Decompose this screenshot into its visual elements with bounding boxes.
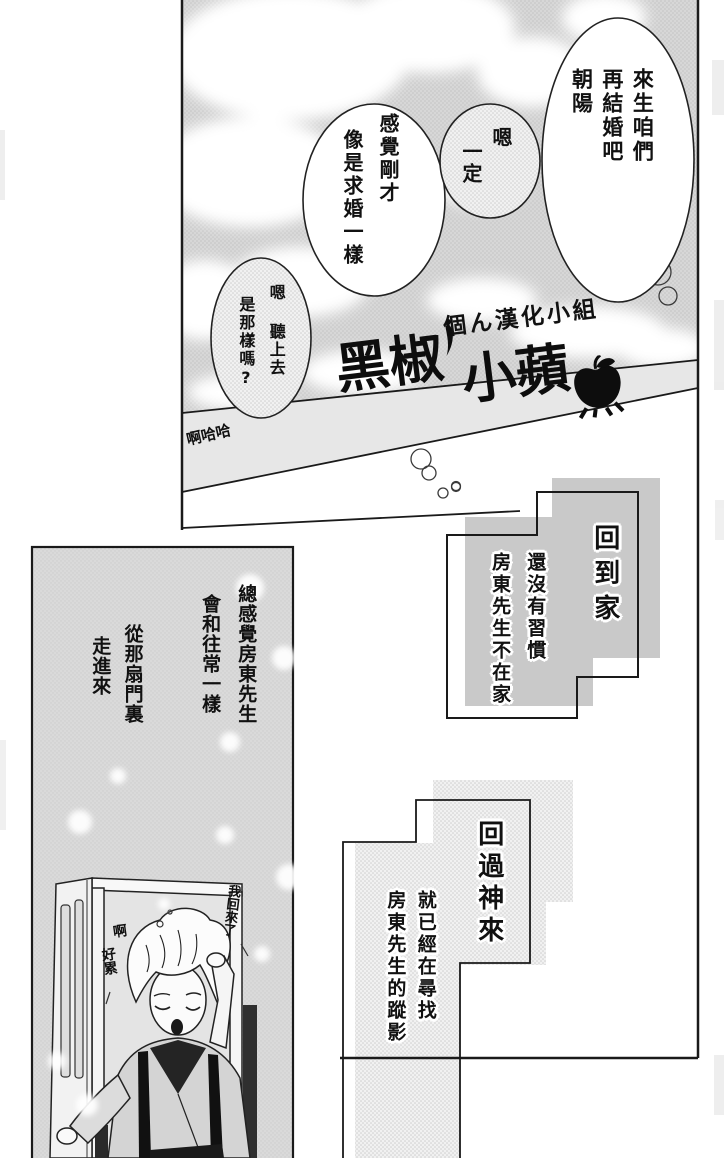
apple-icon (566, 353, 630, 425)
panel3-narration: 還沒有習慣 房東先生不在家 (482, 552, 552, 720)
logo-title: 黑椒 小蘋 (333, 309, 630, 453)
speech-bubble-4-text: 嗯 聽上去 是那樣嗎? (230, 284, 291, 404)
bubble-line: 來生咱們 (627, 68, 657, 263)
bokeh-spot (68, 810, 92, 834)
bokeh-spot (254, 946, 270, 962)
narration-line: 總感覺房東先生 (228, 584, 264, 744)
narration-line: 就已經在尋找 (410, 890, 440, 1095)
bubble-line: 嗯 聽上去 (260, 284, 290, 404)
bokeh-spot (276, 864, 302, 890)
narration-line: 房東先生的蹤影 (380, 890, 410, 1095)
bubble-line: 再結婚吧 (596, 68, 626, 263)
bubble-line: 感覺剛才 (370, 113, 406, 303)
bubble-line: 像是求婚一樣 (334, 113, 370, 303)
bokeh-spot (76, 1094, 98, 1116)
speech-bubble-2-text: 嗯 一定 (456, 127, 516, 222)
speech-bubble-3-text: 感覺剛才 像是求婚一樣 (334, 113, 406, 303)
caption-line: 回到家 (585, 524, 623, 652)
narration-line: 會和往常一樣 (192, 584, 228, 744)
bokeh-spot (216, 826, 234, 844)
bokeh-spot (158, 898, 170, 910)
bubble-line: 一定 (456, 127, 486, 222)
panel3-caption: 回到家 (585, 524, 623, 652)
panel4-caption: 回過神來 (469, 820, 507, 965)
handwritten-speech-2: 啊 (112, 920, 129, 942)
narration-line: 從那扇門裏 (116, 624, 148, 774)
speech-bubble-1-text: 來生咱們 再結婚吧 朝陽 (566, 68, 657, 263)
panel3-box (447, 478, 660, 718)
manga-page: 來生咱們 再結婚吧 朝陽 嗯 一定 感覺剛才 像是求婚一樣 嗯 聽上去 是那樣嗎… (0, 0, 728, 1158)
narration-line: 還沒有習慣 (517, 552, 552, 720)
bubble-line: 嗯 (486, 127, 516, 222)
logo-text-2: 小蘋 (459, 341, 573, 408)
caption-line: 回過神來 (469, 820, 507, 965)
panel2-narration-1: 總感覺房東先生 會和往常一樣 (192, 584, 264, 744)
logo-text-1: 黑椒 (333, 331, 447, 398)
bokeh-spot (48, 1052, 66, 1070)
panel4-narration: 就已經在尋找 房東先生的蹤影 (380, 890, 441, 1095)
bokeh-spot (272, 646, 296, 670)
narration-line: 走進來 (84, 624, 116, 774)
bubble-line: 朝陽 (566, 68, 596, 263)
bubble-line: 是那樣嗎? (230, 284, 260, 404)
narration-line: 房東先生不在家 (482, 552, 517, 720)
panel2-narration-2: 從那扇門裏 走進來 (84, 624, 149, 774)
